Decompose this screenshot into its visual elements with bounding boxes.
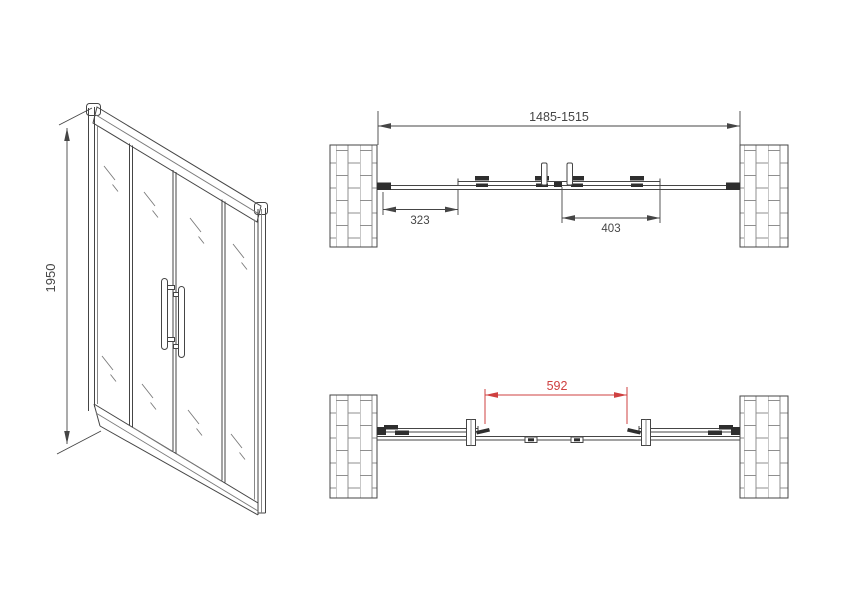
overall-width-label: 1485-1515 [529, 110, 589, 124]
wall-profile-left [377, 183, 391, 191]
drawing-sheet: 1950 [0, 0, 866, 612]
stacked-doors-right [627, 420, 740, 446]
stacked-doors-left [377, 420, 490, 446]
open-plan-view: 592 [330, 379, 788, 498]
opening-dimension: 592 [485, 379, 627, 424]
wall-hatch-left-bottom [330, 395, 377, 498]
opening-dimension-label: 592 [547, 379, 568, 393]
right-offset-dimension: 403 [562, 183, 660, 235]
wall-hatch-right-top [740, 145, 788, 247]
wall-profile-right [726, 183, 740, 191]
height-dimension: 1950 [43, 108, 101, 454]
overall-width-dimension: 1485-1515 [378, 110, 740, 145]
handle-bar-left [162, 279, 168, 350]
height-dimension-label: 1950 [43, 264, 58, 293]
track-assembly-top [377, 163, 740, 190]
handle-top-right [567, 163, 573, 185]
top-plan-view: 1485-1515 323 403 [330, 110, 788, 247]
track-assembly-bottom [377, 437, 740, 443]
handle-top-left [542, 163, 548, 185]
front-view: 1950 [43, 104, 268, 516]
wall-hatch-left-top [330, 145, 377, 247]
left-offset-dimension: 323 [383, 190, 458, 227]
right-offset-label: 403 [601, 223, 620, 235]
wall-hatch-right-bottom [740, 396, 788, 498]
handle-bar-right [179, 287, 185, 358]
left-offset-label: 323 [410, 215, 429, 227]
technical-drawing-canvas: 1950 [0, 0, 866, 612]
